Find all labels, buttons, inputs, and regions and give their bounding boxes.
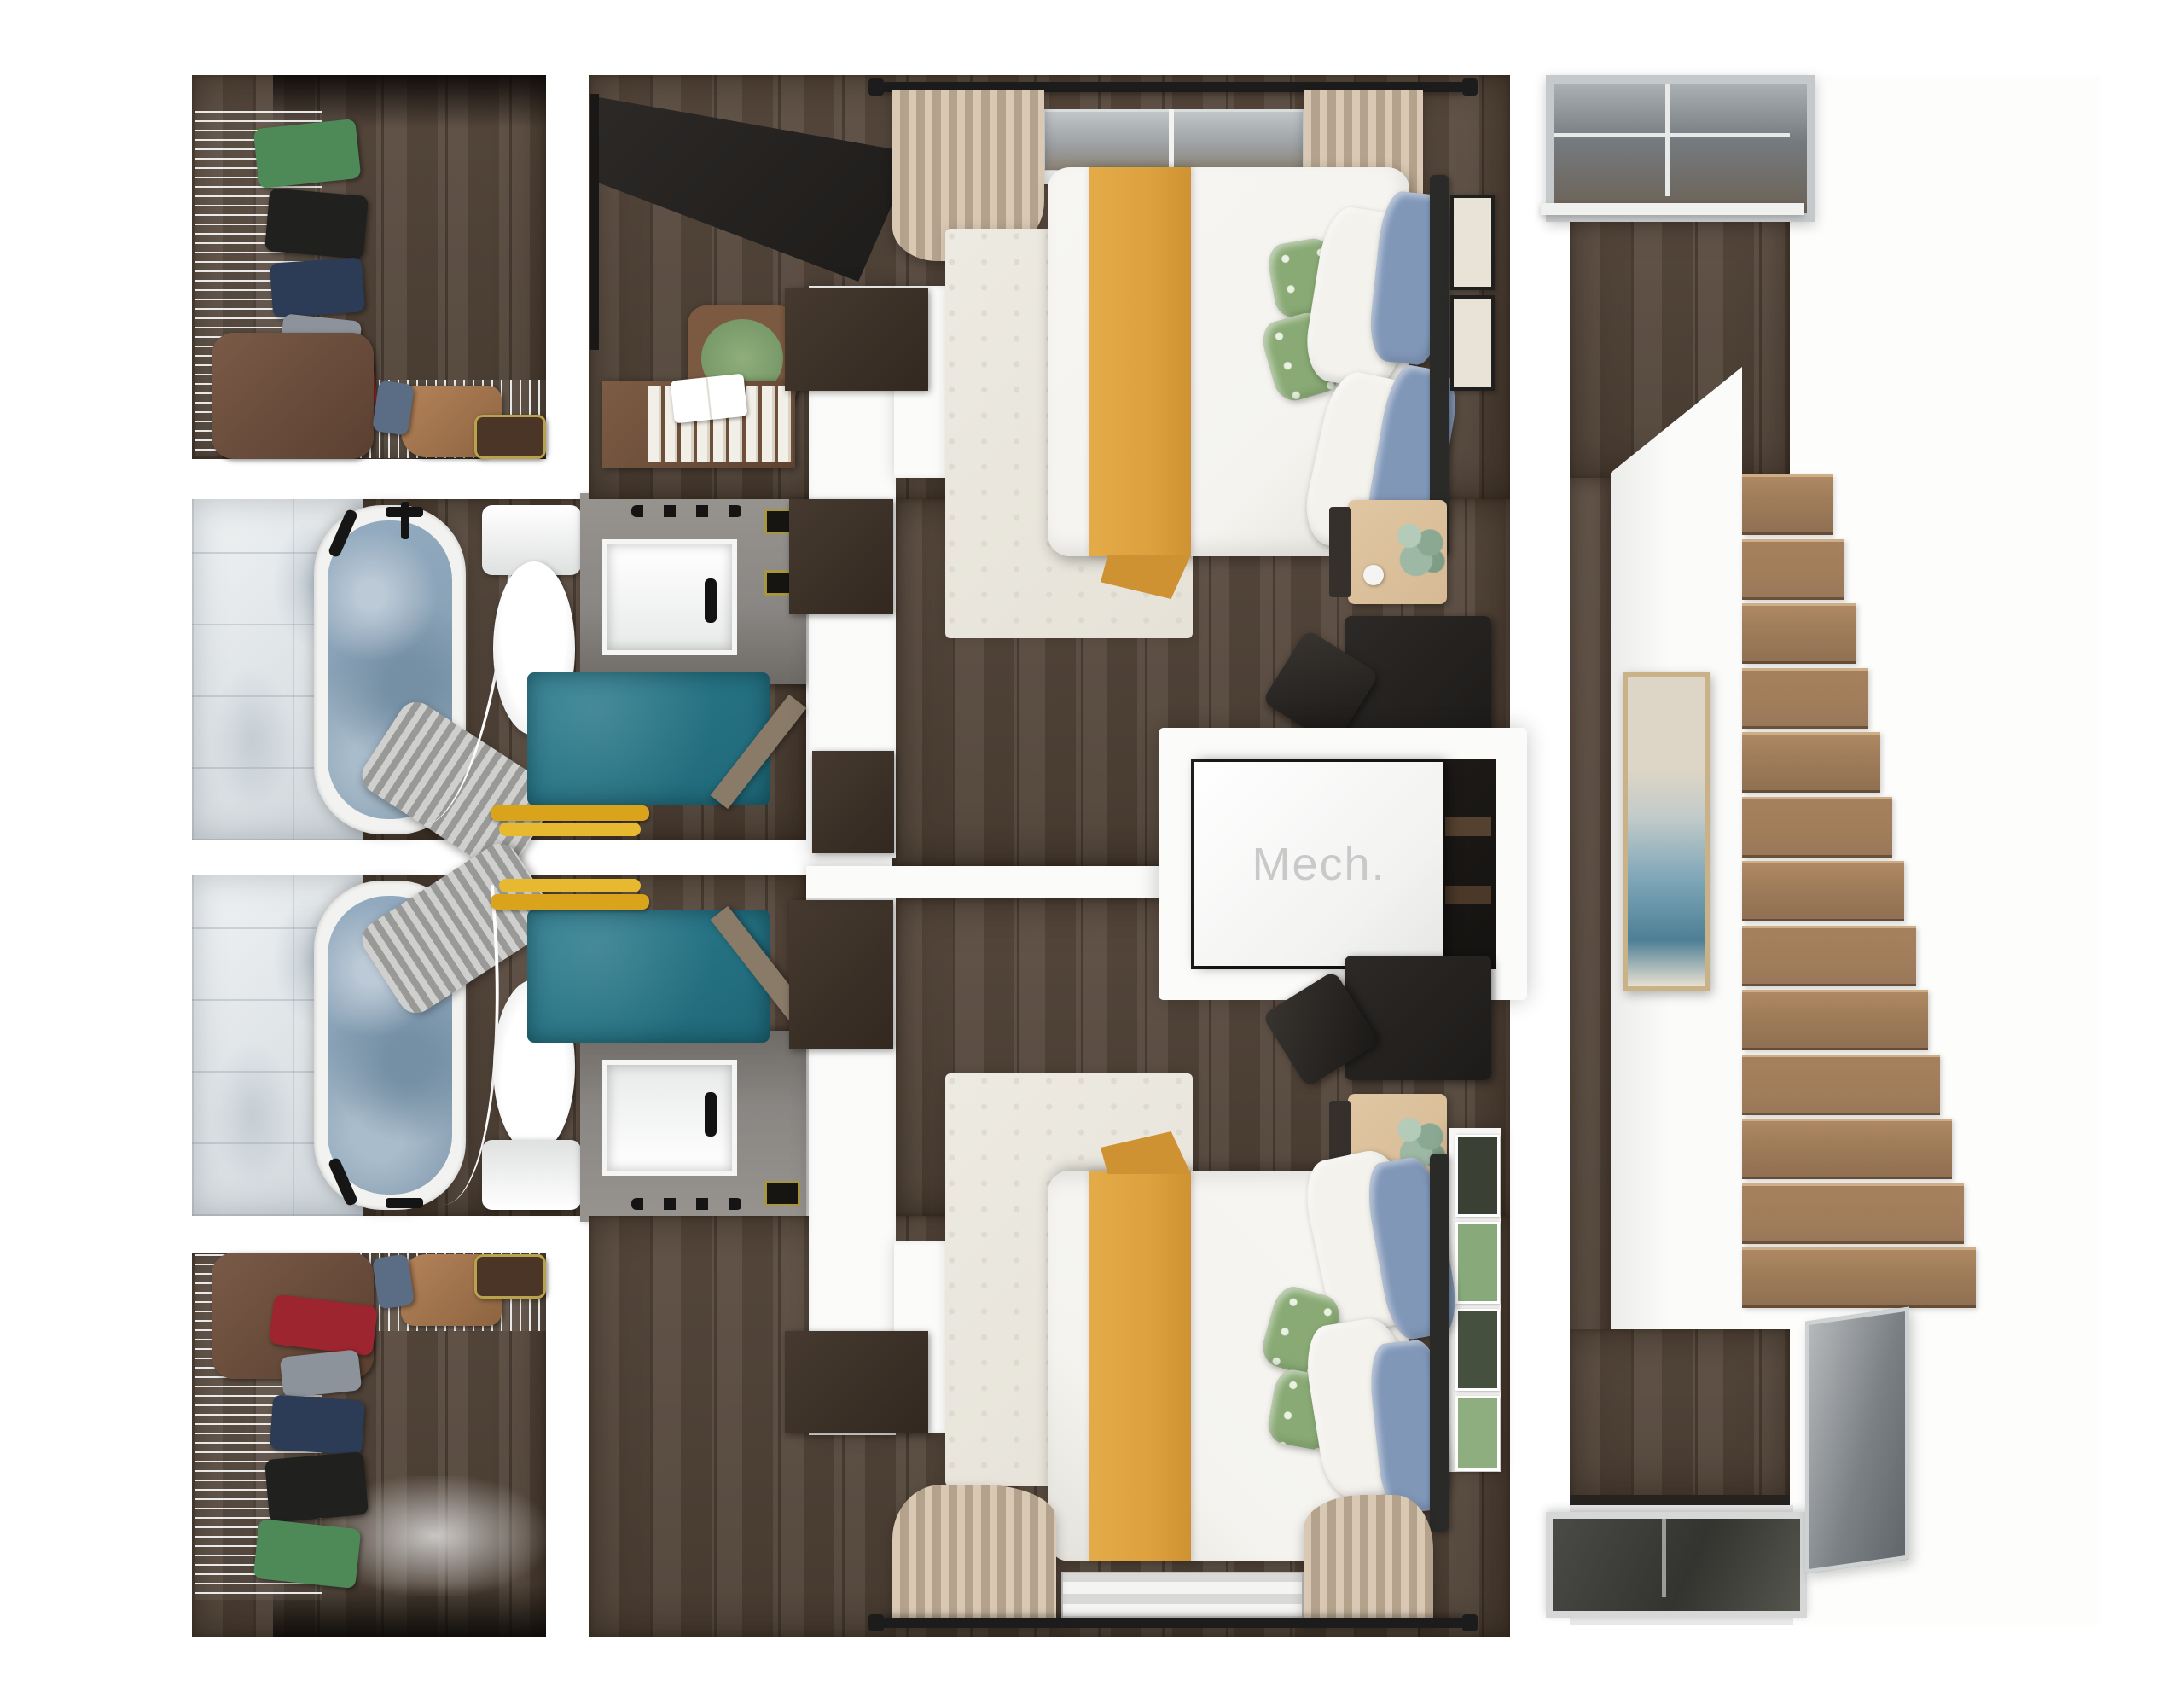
vanity-knobs bbox=[631, 505, 742, 517]
stair-step bbox=[1742, 668, 1868, 729]
nightstand-cup-top bbox=[1363, 565, 1384, 585]
stair-step bbox=[1742, 797, 1892, 858]
wall-art-frame-top-1 bbox=[1450, 195, 1495, 290]
window-bottom-mullion bbox=[1662, 1519, 1666, 1597]
curtain-rod-icon-bottom bbox=[880, 1618, 1466, 1628]
window-top-mullion-v bbox=[1665, 84, 1670, 196]
wall-desk-bottom-bedroom bbox=[1345, 956, 1491, 1080]
floor-plan: Mech. bbox=[0, 0, 2184, 1686]
sink-faucet-icon-2 bbox=[705, 1092, 717, 1137]
clothes-navy bbox=[270, 257, 365, 317]
window-side-stairhall bbox=[1805, 1306, 1909, 1573]
stair-hall-floor-bottom bbox=[1570, 1329, 1790, 1502]
closet-door-top-3 bbox=[812, 751, 894, 853]
rod-finial-right bbox=[1462, 78, 1478, 96]
clothes-black-2 bbox=[264, 1451, 369, 1523]
rod-finial-right-2 bbox=[1462, 1614, 1478, 1631]
towel-yellow-1 bbox=[491, 805, 649, 821]
wall-art-frame-top-2 bbox=[1450, 295, 1495, 391]
bedframe-slats-bottom bbox=[1061, 1572, 1304, 1619]
stair-step bbox=[1742, 1247, 1976, 1308]
gallery-frame-2 bbox=[1455, 1222, 1500, 1304]
mech-water-heater: Mech. bbox=[1194, 762, 1443, 966]
window-top-stairhall bbox=[1546, 75, 1815, 222]
mech-shelf-2 bbox=[1445, 886, 1491, 904]
window-top-sill bbox=[1541, 203, 1804, 215]
nightstand-bin-top bbox=[1329, 507, 1351, 597]
sink-faucet-icon bbox=[705, 578, 717, 623]
towel-yellow-4 bbox=[499, 879, 641, 892]
bedroom-divider-wall bbox=[806, 866, 1160, 898]
floor-edge-bottom bbox=[1570, 1495, 1790, 1505]
tub-faucet-icon-2 bbox=[386, 1198, 423, 1208]
bed-runner-bottom bbox=[1089, 1171, 1191, 1561]
mech-room-label: Mech. bbox=[1252, 838, 1385, 891]
toilet-icon-2 bbox=[482, 1140, 581, 1210]
stair-step bbox=[1742, 990, 1928, 1050]
gallery-frame-3 bbox=[1455, 1309, 1500, 1391]
window-glass-top-bedroom bbox=[1043, 109, 1305, 172]
duffel-bag bbox=[212, 333, 374, 459]
stair-step bbox=[1742, 474, 1833, 535]
rod-finial-left-2 bbox=[868, 1614, 884, 1631]
headboard-bottom bbox=[1430, 1154, 1449, 1532]
bed-runner-top bbox=[1089, 167, 1191, 556]
clothes-gray-2 bbox=[280, 1349, 363, 1398]
plant-icon-top bbox=[1385, 512, 1454, 580]
stair-step bbox=[1742, 603, 1856, 664]
rod-finial-left bbox=[868, 78, 884, 96]
closet-door-bottom-1 bbox=[789, 900, 893, 1049]
window-bottom-stairhall bbox=[1546, 1512, 1807, 1618]
vanity-tray-gold-3 bbox=[764, 1181, 800, 1206]
headboard-top bbox=[1430, 175, 1449, 556]
clothes-blue-hanging bbox=[372, 1253, 415, 1309]
stair-hall-art-frame bbox=[1623, 672, 1710, 991]
open-book-top bbox=[671, 374, 748, 424]
stair-step bbox=[1742, 1119, 1952, 1179]
stair-step bbox=[1742, 539, 1844, 600]
stair-step bbox=[1742, 926, 1916, 986]
towel-yellow-2 bbox=[499, 823, 641, 836]
curtain-right-bottom-bedroom bbox=[1304, 1495, 1433, 1623]
suitcase-brown bbox=[474, 415, 546, 459]
clothes-green bbox=[253, 119, 362, 189]
closet-door-top-1 bbox=[785, 288, 928, 391]
clothes-green-2 bbox=[253, 1519, 362, 1589]
closet-door-bottom-2 bbox=[785, 1331, 928, 1433]
gallery-frame-1 bbox=[1455, 1135, 1500, 1217]
tub-faucet-handle bbox=[401, 502, 409, 539]
curtain-left-bottom-bedroom bbox=[892, 1485, 1056, 1623]
gallery-frame-4 bbox=[1455, 1396, 1500, 1471]
window-mullion-v bbox=[1169, 109, 1174, 172]
towel-yellow-3 bbox=[491, 894, 649, 910]
window-top-mullion-h bbox=[1554, 133, 1790, 137]
stair-step bbox=[1742, 861, 1904, 921]
clothes-navy-2 bbox=[270, 1394, 365, 1455]
stair-step bbox=[1742, 732, 1880, 793]
closet-door-top-2 bbox=[789, 499, 893, 614]
vanity-knobs-2 bbox=[631, 1198, 742, 1210]
suitcase-brown-2 bbox=[474, 1254, 546, 1299]
corner-desk-rail bbox=[590, 94, 599, 350]
stair-step bbox=[1742, 1055, 1940, 1115]
stair-step bbox=[1742, 1183, 1964, 1244]
mech-shelf-1 bbox=[1445, 817, 1491, 836]
clothes-blue-folded bbox=[372, 380, 415, 435]
clothes-black bbox=[264, 188, 369, 259]
